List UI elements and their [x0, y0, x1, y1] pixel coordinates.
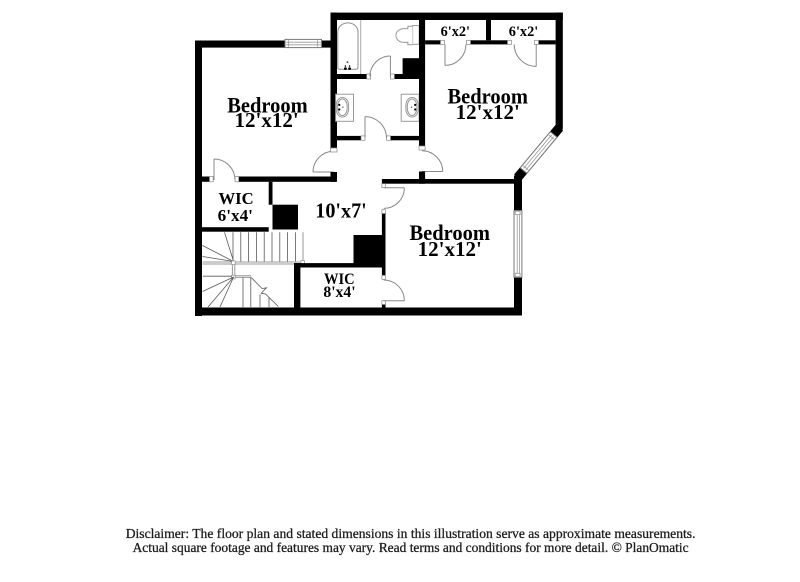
- svg-text:6'x2': 6'x2': [441, 24, 470, 40]
- svg-text:Actual square footage and feat: Actual square footage and features may v…: [133, 540, 689, 555]
- svg-text:12'x12': 12'x12': [456, 100, 520, 124]
- svg-text:6'x4': 6'x4': [218, 206, 253, 225]
- svg-text:12'x12': 12'x12': [235, 108, 299, 132]
- svg-text:12'x12': 12'x12': [418, 237, 482, 261]
- svg-text:8'x4': 8'x4': [323, 284, 355, 301]
- svg-text:Disclaimer: The floor plan and: Disclaimer: The floor plan and stated di…: [126, 526, 696, 541]
- svg-text:6'x2': 6'x2': [509, 24, 538, 40]
- svg-text:10'x7': 10'x7': [315, 199, 367, 223]
